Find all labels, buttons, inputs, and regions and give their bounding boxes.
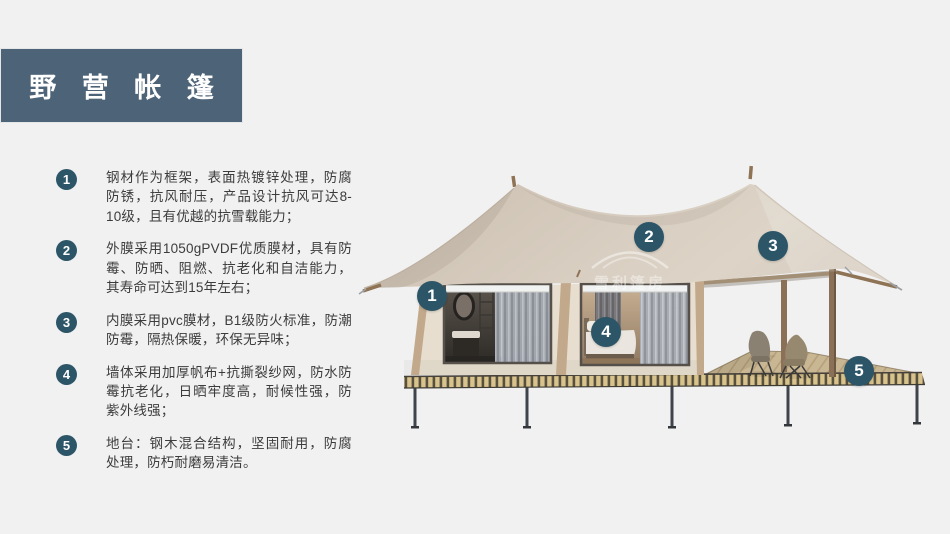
window-bathroom: [444, 284, 551, 363]
cabin: [404, 279, 704, 375]
curtain-right-window: [640, 285, 689, 365]
slide: 野 营 帐 篷 1 钢材作为框架，表面热镀锌处理，防腐防锈，抗风耐压，产品设计抗…: [0, 0, 950, 534]
tent-render: 雪利篷房: [0, 0, 950, 534]
canopy-peak-pole-right: [748, 166, 753, 179]
bathroom-mirror: [455, 293, 474, 319]
deck-leg-feet: [411, 422, 921, 429]
callout-badge-1: 1: [417, 281, 447, 311]
window-valance: [446, 285, 549, 292]
tent-illustration: 雪利篷房 1 2 3 4 5: [0, 0, 950, 534]
watermark-text: 雪利篷房: [594, 274, 666, 292]
callout-badge-2: 2: [634, 222, 664, 252]
callout-badge-4: 4: [591, 317, 621, 347]
callout-badge-3: 3: [758, 231, 788, 261]
deck-legs: [415, 382, 917, 427]
bathroom-cabinet: [453, 338, 479, 359]
curtain-left-window: [495, 285, 551, 363]
callout-badge-5: 5: [844, 356, 874, 386]
bathroom-sink: [452, 331, 480, 338]
canopy-peak-pole-left: [511, 176, 516, 187]
